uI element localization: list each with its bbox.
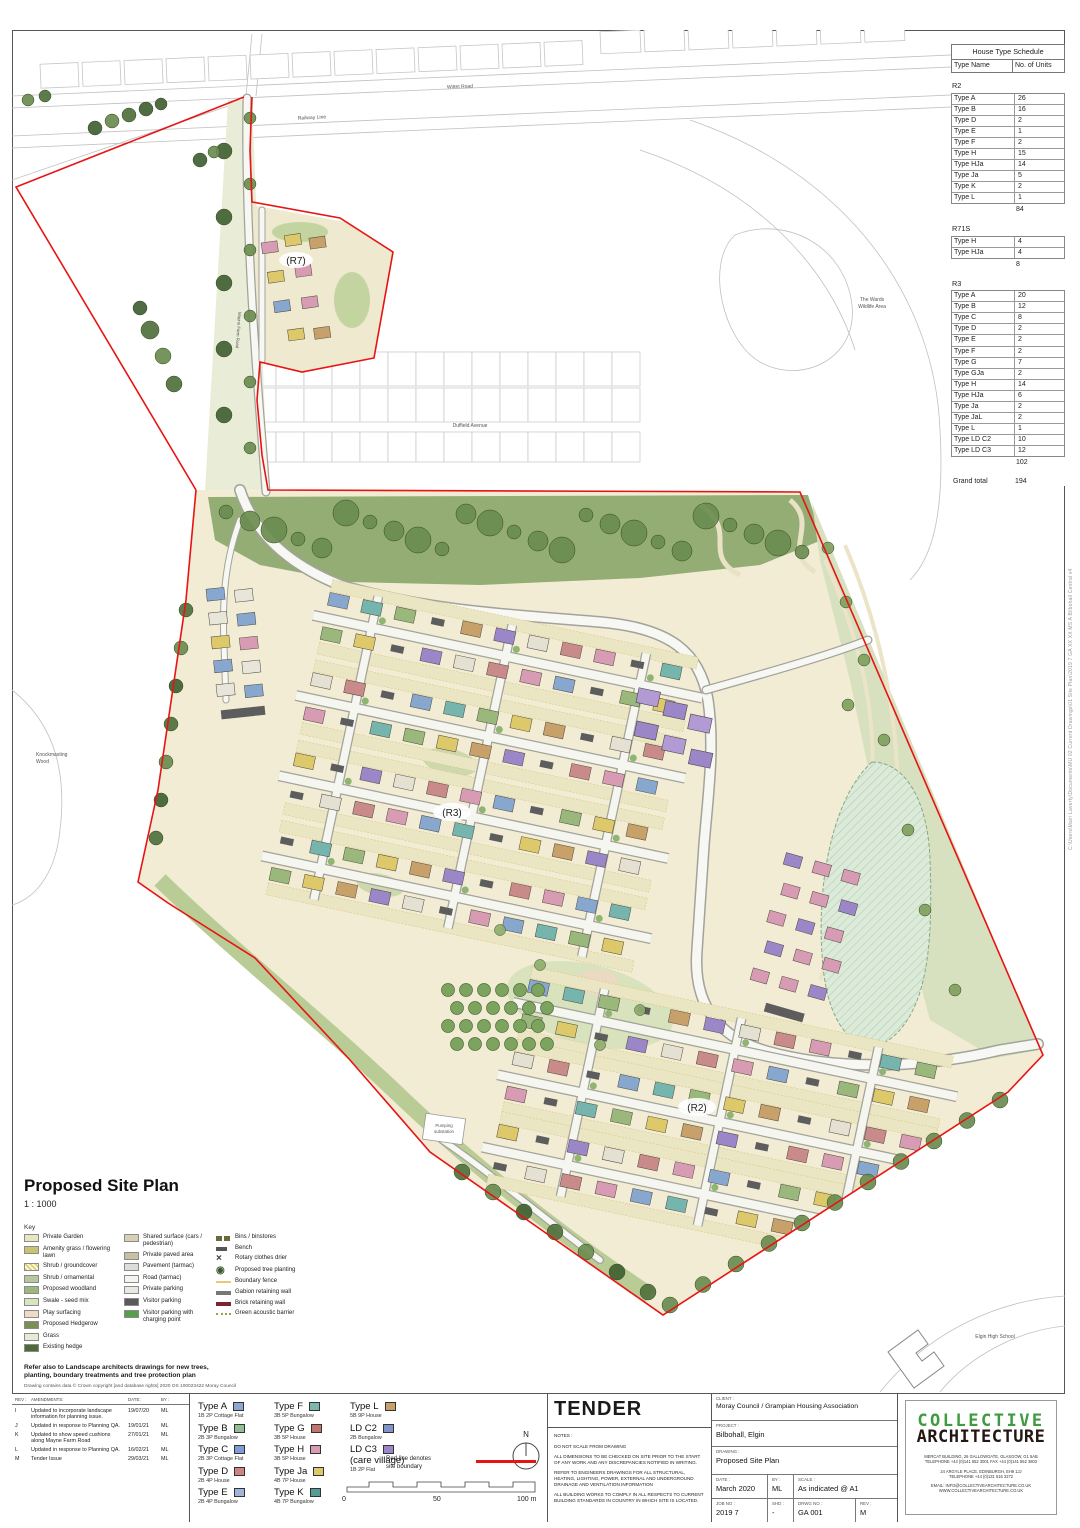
- schedule-units-cell: 26: [1015, 94, 1064, 104]
- duffield-avenue-label: Duffield Avenue: [453, 423, 488, 429]
- address-group: 24 ARGYLE PLACE, EDINBURGH, EH9 1JJTELEP…: [906, 1469, 1056, 1479]
- house-type-entry: Type F3B 5P Bungalow: [274, 1401, 324, 1419]
- dwg-value: GA 001: [798, 1508, 851, 1517]
- house-type-swatch: [309, 1402, 320, 1411]
- house-type-entry: Type B2B 3P Bungalow: [198, 1423, 245, 1441]
- schedule-row: Type E2: [952, 335, 1064, 346]
- house-type-swatch: [234, 1424, 245, 1433]
- house-type-swatch: [234, 1445, 245, 1454]
- grand-total-label: Grand total: [951, 478, 1015, 486]
- house-types-cell: Type A1B 2P Cottage FlatType B2B 3P Bung…: [190, 1394, 548, 1522]
- house-type-name-row: Type G: [274, 1423, 324, 1434]
- revision-letter: M: [15, 1456, 31, 1462]
- schedule-units-cell: 1: [1015, 127, 1064, 137]
- wards-label-2: Wildlife Area: [858, 304, 886, 310]
- schedule-row: Type HJa4: [952, 248, 1064, 258]
- key-label: Brick retaining wall: [235, 1300, 285, 1307]
- context-building-plots: [40, 30, 905, 462]
- boundary-fence-symbol: [216, 1281, 231, 1283]
- schedule-grand-total: Grand total 194: [951, 478, 1065, 486]
- project-value: Bilbohall, Elgin: [716, 1430, 893, 1439]
- schedule-row: Type A20: [952, 291, 1064, 302]
- date-label: DATE :: [716, 1477, 763, 1482]
- schedule-row: Type LD C210: [952, 435, 1064, 446]
- schedule-type-cell: Type G: [952, 358, 1015, 368]
- boundary-note: Red line denotes site boundary: [386, 1456, 431, 1471]
- house-type-name: Type G: [274, 1423, 305, 1434]
- revision-text: Tender Issue: [31, 1456, 128, 1462]
- pumping-label-1: Pumping: [435, 1123, 453, 1128]
- schedule-group-table: Type A26Type B16Type D2Type E1Type F2Typ…: [951, 93, 1065, 204]
- client-value: Moray Council / Grampian Housing Associa…: [716, 1403, 893, 1410]
- drawing-row: DRAWING : Proposed Site Plan: [712, 1447, 897, 1475]
- schedule-units-cell: 20: [1015, 291, 1064, 301]
- swale-swatch: [24, 1298, 39, 1306]
- house-type-name: Type C: [198, 1444, 228, 1455]
- rev-header-by: BY :: [161, 1397, 175, 1402]
- house-type-name-row: Type L: [350, 1401, 404, 1412]
- private-garden-swatch: [24, 1234, 39, 1242]
- house-type-swatch: [385, 1402, 396, 1411]
- key-label: Boundary fence: [235, 1278, 277, 1285]
- house-type-name-row: Type A: [198, 1401, 245, 1412]
- rev-cell: REV : M: [856, 1499, 897, 1522]
- gabion-wall-symbol: [216, 1291, 231, 1295]
- schedule-units-cell: 2: [1015, 369, 1064, 379]
- schedule-total-spacer: [951, 204, 1013, 216]
- acoustic-barrier-symbol: [216, 1313, 231, 1315]
- shd-cell: SHD : -: [768, 1499, 794, 1522]
- schedule-group-name: R3: [952, 280, 1065, 288]
- schedule-type-cell: Type B: [952, 105, 1015, 115]
- amenity-grass-swatch: [24, 1246, 39, 1254]
- schedule-type-cell: Type E: [952, 127, 1015, 137]
- schedule-type-cell: Type Ja: [952, 171, 1015, 181]
- schedule-units-cell: 1: [1015, 193, 1064, 203]
- house-type-name: Type D: [198, 1466, 228, 1477]
- schedule-total-value: 8: [1013, 259, 1065, 271]
- schedule-units-cell: 4: [1015, 248, 1064, 258]
- schedule-type-cell: Type GJa: [952, 369, 1015, 379]
- key-label: Proposed tree planting: [235, 1267, 295, 1274]
- house-type-name-row: Type K: [274, 1487, 324, 1498]
- schedule-type-cell: Type L: [952, 424, 1015, 434]
- house-type-swatch: [310, 1445, 321, 1454]
- key-label: Grass: [43, 1333, 59, 1340]
- schedule-row: Type H15: [952, 149, 1064, 160]
- schedule-type-cell: Type LD C2: [952, 435, 1015, 445]
- key-item: Bins / binstores: [216, 1234, 328, 1241]
- key-label: Green acoustic barrier: [235, 1310, 294, 1317]
- tender-note: ALL BUILDING WORKS TO COMPLY IN ALL RESP…: [554, 1492, 705, 1503]
- key-columns: Private GardenAmenity grass / flowering …: [24, 1234, 336, 1356]
- project-info-cell: CLIENT : Moray Council / Grampian Housin…: [712, 1394, 898, 1522]
- schedule-total-value: 102: [1013, 457, 1065, 469]
- key-column: Shared surface (cars / pedestrian)Privat…: [124, 1234, 216, 1356]
- schedule-row: Type E1: [952, 127, 1064, 138]
- house-type-swatch: [311, 1424, 322, 1433]
- r3-parcel-label: (R3): [442, 808, 461, 819]
- house-type-entry: Type H3B 5P House: [274, 1444, 324, 1462]
- house-type-swatch: [234, 1488, 245, 1497]
- drawing-label: DRAWING :: [716, 1449, 893, 1454]
- scale-value: As indicated @ A1: [798, 1484, 893, 1493]
- r7-parcel-label: (R7): [286, 256, 305, 267]
- house-type-name-row: LD C2: [350, 1423, 404, 1434]
- schedule-units-cell: 2: [1015, 116, 1064, 126]
- revision-text: Updated in response to Planning QA.: [31, 1423, 128, 1429]
- house-type-desc: 4B 7P Bungalow: [274, 1499, 324, 1505]
- tender-note: REFER TO ENGINEERS DRAWINGS FOR ALL STRU…: [554, 1470, 705, 1487]
- key-label: Visitor parking with charging point: [143, 1310, 216, 1324]
- schedule-row: Type B16: [952, 105, 1064, 116]
- revision-row: IUpdated to incorporate landscape inform…: [12, 1405, 189, 1420]
- date-value: March 2020: [716, 1484, 763, 1493]
- key-item: Gabion retaining wall: [216, 1289, 328, 1296]
- shrub-groundcover-swatch: [24, 1263, 39, 1271]
- grand-total-value: 194: [1015, 478, 1027, 486]
- boundary-note-line1: Red line denotes: [386, 1456, 431, 1462]
- red-line-swatch: [476, 1460, 536, 1463]
- house-type-desc: 3B 5P House: [274, 1435, 324, 1441]
- house-type-desc: 2B 3P Bungalow: [198, 1435, 245, 1441]
- house-type-swatch: [310, 1488, 321, 1497]
- key-label: Existing hedge: [43, 1344, 82, 1351]
- schedule-row: Type B12: [952, 302, 1064, 313]
- key-label: Swale - seed mix: [43, 1298, 89, 1305]
- schedule-type-cell: Type H: [952, 380, 1015, 390]
- schedule-units-cell: 14: [1015, 380, 1064, 390]
- revision-by: ML: [161, 1456, 175, 1462]
- schedule-total-value: 84: [1013, 204, 1065, 216]
- house-type-swatch: [383, 1445, 394, 1454]
- logo-architecture: ARCHITECTURE: [906, 1429, 1056, 1445]
- schedule-units-cell: 2: [1015, 324, 1064, 334]
- key-item: Green acoustic barrier: [216, 1310, 328, 1317]
- schedule-type-cell: Type F: [952, 138, 1015, 148]
- house-type-name: Type A: [198, 1401, 227, 1412]
- key-column: Bins / binstoresBench×Rotary clothes dri…: [216, 1234, 328, 1356]
- house-type-name: LD C2: [350, 1423, 377, 1434]
- tree-planting-symbol: ◉: [216, 1267, 231, 1275]
- schedule-units-cell: 15: [1015, 149, 1064, 159]
- scale-zero: 0: [342, 1496, 346, 1503]
- scale-label: SCALE :: [798, 1477, 893, 1482]
- revision-by: ML: [161, 1408, 175, 1421]
- house-type-name-row: Type F: [274, 1401, 324, 1412]
- key-heading: Key: [24, 1224, 336, 1231]
- north-arrow: N: [508, 1430, 544, 1478]
- schedule-row: Type L1: [952, 424, 1064, 435]
- house-type-name-row: Type B: [198, 1423, 245, 1434]
- house-type-name: Type H: [274, 1444, 304, 1455]
- rev-value: M: [860, 1508, 893, 1517]
- job-value: 2019 7: [716, 1508, 763, 1517]
- key-item: Play surfacing: [24, 1310, 124, 1318]
- rev-header-date: DATE:: [128, 1397, 161, 1402]
- house-type-desc: 2B 4P Bungalow: [198, 1499, 245, 1505]
- schedule-units-cell: 5: [1015, 171, 1064, 181]
- revision-row: KUpdated to show speed cushions along Ma…: [12, 1429, 189, 1444]
- house-type-desc: 3B 5P Bungalow: [274, 1413, 324, 1419]
- railway-line-label: Railway Line: [298, 114, 327, 121]
- house-type-swatch: [383, 1424, 394, 1433]
- revision-letter: I: [15, 1408, 31, 1421]
- house-type-entry: LD C22B Bungalow: [350, 1423, 404, 1441]
- revision-text: Updated to incorporate landscape informa…: [31, 1408, 128, 1421]
- schedule-type-cell: Type F: [952, 347, 1015, 357]
- title-block-strip: REV : AMENDMENTS: DATE: BY : IUpdated to…: [12, 1393, 1065, 1522]
- key-label: Amenity grass / flowering lawn: [43, 1246, 124, 1260]
- wards-label-1: The Wards: [860, 297, 885, 303]
- schedule-row: Type L1: [952, 193, 1064, 203]
- revision-by: ML: [161, 1447, 175, 1453]
- schedule-type-cell: Type D: [952, 324, 1015, 334]
- schedule-type-cell: Type D: [952, 116, 1015, 126]
- client-label: CLIENT :: [716, 1396, 893, 1401]
- key-label: Private paved area: [143, 1252, 193, 1259]
- visitor-parking-charging-swatch: [124, 1310, 139, 1318]
- address-line: WWW.COLLECTIVEARCHITECTURE.CO.UK: [906, 1488, 1056, 1493]
- copyright-note: Drawing contains data © Crown copyright …: [24, 1384, 336, 1389]
- schedule-row: Type H14: [952, 380, 1064, 391]
- date-by-scale-row: DATE : March 2020 BY : ML SCALE : As ind…: [712, 1475, 897, 1499]
- revision-row: MTender Issue29/03/21ML: [12, 1453, 189, 1462]
- schedule-group-name: R2: [952, 82, 1065, 90]
- schedule-row: Type HJa14: [952, 160, 1064, 171]
- house-type-name: Type E: [198, 1487, 228, 1498]
- schedule-type-cell: Type K: [952, 182, 1015, 192]
- revision-date: 27/01/21: [128, 1432, 161, 1445]
- tender-note: DO NOT SCALE FROM DRAWING: [554, 1444, 705, 1450]
- house-type-name-row: Type E: [198, 1487, 245, 1498]
- house-type-desc: 1B 2P Cottage Flat: [198, 1413, 245, 1419]
- drawing-sheet: { "plan": { "labels": { "r7": "(R7)", "r…: [0, 0, 1080, 1528]
- schedule-type-cell: Type HJa: [952, 391, 1015, 401]
- house-type-name: LD C3: [350, 1444, 377, 1455]
- house-type-name-row: LD C3: [350, 1444, 404, 1455]
- key-item: Shrub / groundcover: [24, 1263, 124, 1271]
- house-type-desc: 2B 3P Cottage Flat: [198, 1456, 245, 1462]
- schedule-row: Type GJa2: [952, 369, 1064, 380]
- dwg-label: DRWG NO :: [798, 1501, 851, 1506]
- key-label: Proposed woodland: [43, 1286, 96, 1293]
- knockmasting-label-2: Wood: [36, 759, 49, 765]
- house-type-swatch: [313, 1467, 324, 1476]
- key-item: Visitor parking: [124, 1298, 216, 1306]
- house-type-desc: 4B 7P House: [274, 1478, 324, 1484]
- revisions-cell: REV : AMENDMENTS: DATE: BY : IUpdated to…: [12, 1394, 190, 1522]
- schedule-total-spacer: [951, 259, 1013, 271]
- schedule-col-units: No. of Units: [1013, 60, 1054, 72]
- key-item: Swale - seed mix: [24, 1298, 124, 1306]
- house-type-entry: Type K4B 7P Bungalow: [274, 1487, 324, 1505]
- house-type-swatch: [233, 1402, 244, 1411]
- existing-hedge-swatch: [24, 1344, 39, 1352]
- key-item: Visitor parking with charging point: [124, 1310, 216, 1324]
- house-type-entry: Type G3B 5P House: [274, 1423, 324, 1441]
- house-type-entry: Type A1B 2P Cottage Flat: [198, 1401, 245, 1419]
- address-group: MERCAT BUILDING, 26 GALLOWGATE, GLASGOW,…: [906, 1454, 1056, 1464]
- key-column: Private GardenAmenity grass / flowering …: [24, 1234, 124, 1356]
- shd-value: -: [772, 1508, 789, 1517]
- project-row: PROJECT : Bilbohall, Elgin: [712, 1421, 897, 1447]
- revision-date: 19/01/21: [128, 1423, 161, 1429]
- brick-wall-symbol: [216, 1302, 231, 1306]
- revision-text: Updated in response to Planning QA.: [31, 1447, 128, 1453]
- r2-parcel-label: (R2): [687, 1103, 706, 1114]
- north-arrow-icon: [509, 1439, 543, 1473]
- key-label: Rotary clothes drier: [235, 1255, 287, 1262]
- key-item: Bench: [216, 1245, 328, 1252]
- schedule-type-cell: Type HJa: [952, 160, 1015, 170]
- schedule-type-cell: Type E: [952, 335, 1015, 345]
- schedule-units-cell: 16: [1015, 105, 1064, 115]
- schedule-group-table: Type H4Type HJa4: [951, 236, 1065, 259]
- revision-by: ML: [161, 1432, 175, 1445]
- schedule-units-cell: 2: [1015, 138, 1064, 148]
- key-label: Bins / binstores: [235, 1234, 276, 1241]
- schedule-type-cell: Type C: [952, 313, 1015, 323]
- revision-letter: L: [15, 1447, 31, 1453]
- scale-cell: SCALE : As indicated @ A1: [794, 1475, 897, 1498]
- schedule-row: Type A26: [952, 94, 1064, 105]
- address-line: TELEPHONE +44 (0)141 552 3001 FAX +44 (0…: [906, 1459, 1056, 1464]
- schedule-title: House Type Schedule: [951, 44, 1065, 60]
- rev-header-rev: REV :: [15, 1397, 31, 1402]
- house-type-entry: Type D2B 4P House: [198, 1466, 245, 1484]
- house-type-desc: 2B 4P House: [198, 1478, 245, 1484]
- key-item: Amenity grass / flowering lawn: [24, 1246, 124, 1260]
- key-label: Gabion retaining wall: [235, 1289, 291, 1296]
- pumping-label-2: substation: [434, 1129, 455, 1134]
- schedule-group-name: R71S: [952, 225, 1065, 233]
- schedule-row: Type LD C312: [952, 446, 1064, 456]
- house-type-name-row: Type Ja: [274, 1466, 324, 1477]
- schedule-units-cell: 7: [1015, 358, 1064, 368]
- house-type-column-2: Type F3B 5P BungalowType G3B 5P HouseTyp…: [274, 1401, 324, 1509]
- bins-symbol: [216, 1236, 231, 1241]
- plan-key-block: Proposed Site Plan 1 : 1000 Key Private …: [24, 1176, 336, 1389]
- key-item: ◉Proposed tree planting: [216, 1267, 328, 1275]
- job-label: JOB NO :: [716, 1501, 763, 1506]
- schedule-units-cell: 2: [1015, 335, 1064, 345]
- key-label: Play surfacing: [43, 1310, 81, 1317]
- address-line: TELEPHONE +44 (0)131 516 3272: [906, 1474, 1056, 1479]
- landscape-note-line1: Refer also to Landscape architects drawi…: [24, 1364, 209, 1371]
- schedule-row: Type Ja5: [952, 171, 1064, 182]
- schedule-units-cell: 6: [1015, 391, 1064, 401]
- job-row: JOB NO : 2019 7 SHD : - DRWG NO : GA 001…: [712, 1499, 897, 1522]
- notes-label: NOTES :: [554, 1433, 705, 1439]
- visitor-parking-swatch: [124, 1298, 139, 1306]
- page-title: Proposed Site Plan: [24, 1176, 336, 1196]
- schedule-row: Type Ja2: [952, 402, 1064, 413]
- house-type-name: Type B: [198, 1423, 228, 1434]
- notes-paragraphs: DO NOT SCALE FROM DRAWINGALL DIMENSIONS …: [554, 1444, 705, 1504]
- shd-label: SHD :: [772, 1501, 789, 1506]
- key-item: Shared surface (cars / pedestrian): [124, 1234, 216, 1248]
- schedule-type-cell: Type Ja: [952, 402, 1015, 412]
- schedule-col-type: Type Name: [952, 60, 1013, 72]
- knockmasting-label-1: Knockmasting: [36, 752, 68, 758]
- private-parking-swatch: [124, 1286, 139, 1294]
- scale-hundred: 100 m: [517, 1496, 536, 1503]
- key-label: Visitor parking: [143, 1298, 181, 1305]
- house-type-name-row: Type D: [198, 1466, 245, 1477]
- schedule-units-cell: 2: [1015, 413, 1064, 423]
- architect-address: MERCAT BUILDING, 26 GALLOWGATE, GLASGOW,…: [906, 1454, 1056, 1493]
- schedule-row: Type HJa6: [952, 391, 1064, 402]
- key-label: Pavement (tarmac): [143, 1263, 194, 1270]
- house-type-entry: Type C2B 3P Cottage Flat: [198, 1444, 245, 1462]
- schedule-units-cell: 4: [1015, 237, 1064, 247]
- key-label: Shrub / ornamental: [43, 1275, 94, 1282]
- tender-note: ALL DIMENSIONS TO BE CHECKED ON SITE PRI…: [554, 1454, 705, 1465]
- road-swatch: [124, 1275, 139, 1283]
- key-item: Brick retaining wall: [216, 1300, 328, 1307]
- key-item: Proposed woodland: [24, 1286, 124, 1294]
- dwg-cell: DRWG NO : GA 001: [794, 1499, 856, 1522]
- house-type-desc: 5B 9P House: [350, 1413, 404, 1419]
- by-cell: BY : ML: [768, 1475, 794, 1498]
- house-type-name-row: Type H: [274, 1444, 324, 1455]
- bench-symbol: [216, 1247, 227, 1251]
- schedule-row: Type D2: [952, 324, 1064, 335]
- grass-swatch: [24, 1333, 39, 1341]
- schedule-group-total: 102: [951, 457, 1065, 469]
- key-label: Bench: [235, 1245, 252, 1252]
- key-item: Road (tarmac): [124, 1275, 216, 1283]
- by-value: ML: [772, 1484, 789, 1493]
- schedule-row: Type C8: [952, 313, 1064, 324]
- key-item: Grass: [24, 1333, 124, 1341]
- key-label: Road (tarmac): [143, 1275, 181, 1282]
- schedule-type-cell: Type A: [952, 291, 1015, 301]
- key-item: Boundary fence: [216, 1278, 328, 1285]
- landscape-note: Refer also to Landscape architects drawi…: [24, 1364, 336, 1380]
- revision-date: 16/02/21: [128, 1447, 161, 1453]
- key-item: ×Rotary clothes drier: [216, 1255, 328, 1263]
- revision-date: 29/03/21: [128, 1456, 161, 1462]
- schedule-type-cell: Type H: [952, 237, 1015, 247]
- proposed-woodland-swatch: [24, 1286, 39, 1294]
- tender-status: TENDER: [548, 1394, 711, 1428]
- scale-fifty: 50: [433, 1496, 441, 1503]
- schedule-row: Type D2: [952, 116, 1064, 127]
- schedule-group-table: Type A20Type B12Type C8Type D2Type E2Typ…: [951, 290, 1065, 457]
- schedule-group-total: 84: [951, 204, 1065, 216]
- schedule-type-cell: Type L: [952, 193, 1015, 203]
- wittet-road-label: Wittet Road: [447, 83, 474, 90]
- schedule-type-cell: Type H: [952, 149, 1015, 159]
- schedule-units-cell: 2: [1015, 402, 1064, 412]
- scale-bar: [345, 1480, 537, 1494]
- key-item: Shrub / ornamental: [24, 1275, 124, 1283]
- house-type-entry: Type L5B 9P House: [350, 1401, 404, 1419]
- proposed-hedgerow-swatch: [24, 1321, 39, 1329]
- schedule-column-headers: Type Name No. of Units: [951, 60, 1065, 73]
- house-type-name: Type L: [350, 1401, 379, 1412]
- drawing-value: Proposed Site Plan: [716, 1456, 893, 1465]
- key-label: Proposed Hedgerow: [43, 1321, 98, 1328]
- key-item: Proposed Hedgerow: [24, 1321, 124, 1329]
- schedule-row: Type JaL2: [952, 413, 1064, 424]
- schedule-total-spacer: [951, 457, 1013, 469]
- house-type-schedule: House Type Schedule Type Name No. of Uni…: [951, 44, 1065, 486]
- revision-row: JUpdated in response to Planning QA.19/0…: [12, 1420, 189, 1429]
- address-group: EMAIL: INFO@COLLECTIVEARCHITECTURE.CO.UK…: [906, 1483, 1056, 1493]
